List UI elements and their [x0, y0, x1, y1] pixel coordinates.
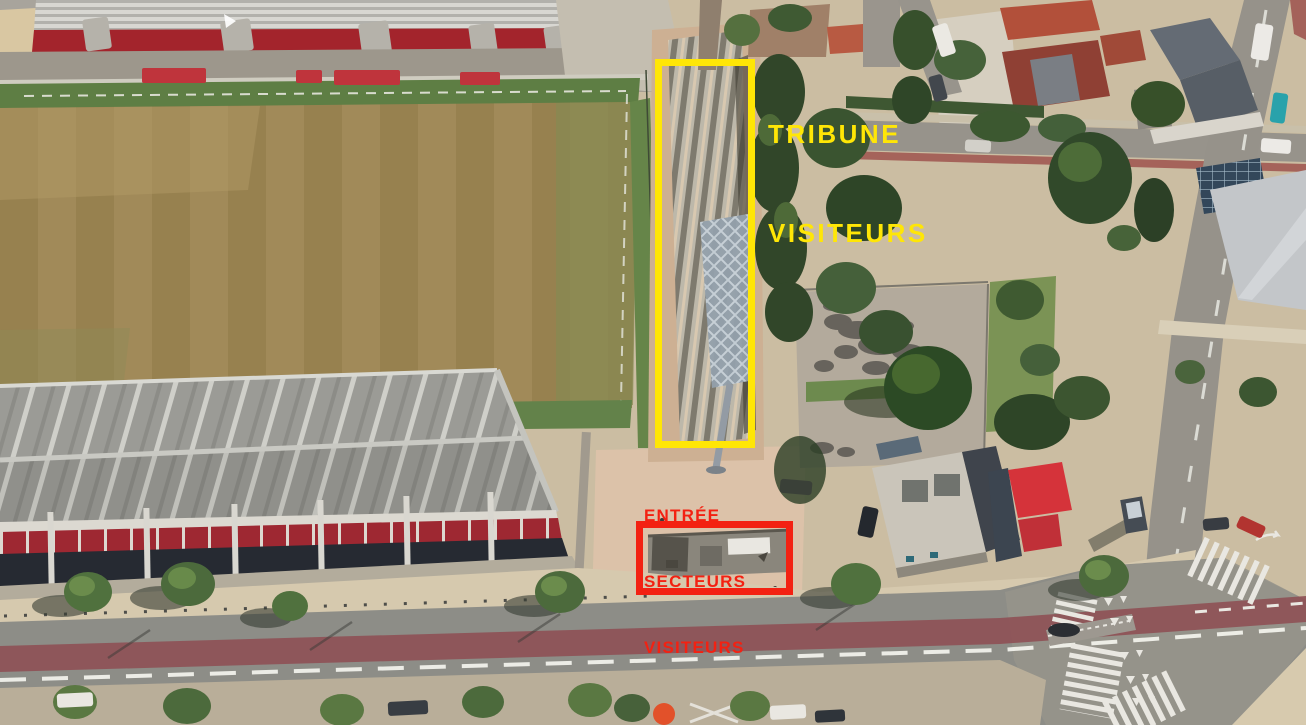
visitor-entrance-label: ENTRÉE SECTEURS VISITEURS [644, 461, 746, 703]
aerial-view: TRIBUNE VISITEURS ENTRÉE SECTEURS VISITE… [0, 0, 1306, 725]
visitor-entrance-label-line2: SECTEURS [644, 571, 746, 593]
visitor-stand-label-line1: TRIBUNE [768, 118, 928, 151]
visitor-entrance-label-line1: ENTRÉE [644, 505, 746, 527]
visitor-entrance-label-line3: VISITEURS [644, 637, 746, 659]
main-stand [0, 370, 591, 602]
visitor-stand-label: TRIBUNE VISITEURS [768, 52, 928, 316]
orange-canopy [653, 703, 675, 725]
visitor-stand-highlight-box [655, 59, 755, 448]
visitor-stand-label-line2: VISITEURS [768, 217, 928, 250]
